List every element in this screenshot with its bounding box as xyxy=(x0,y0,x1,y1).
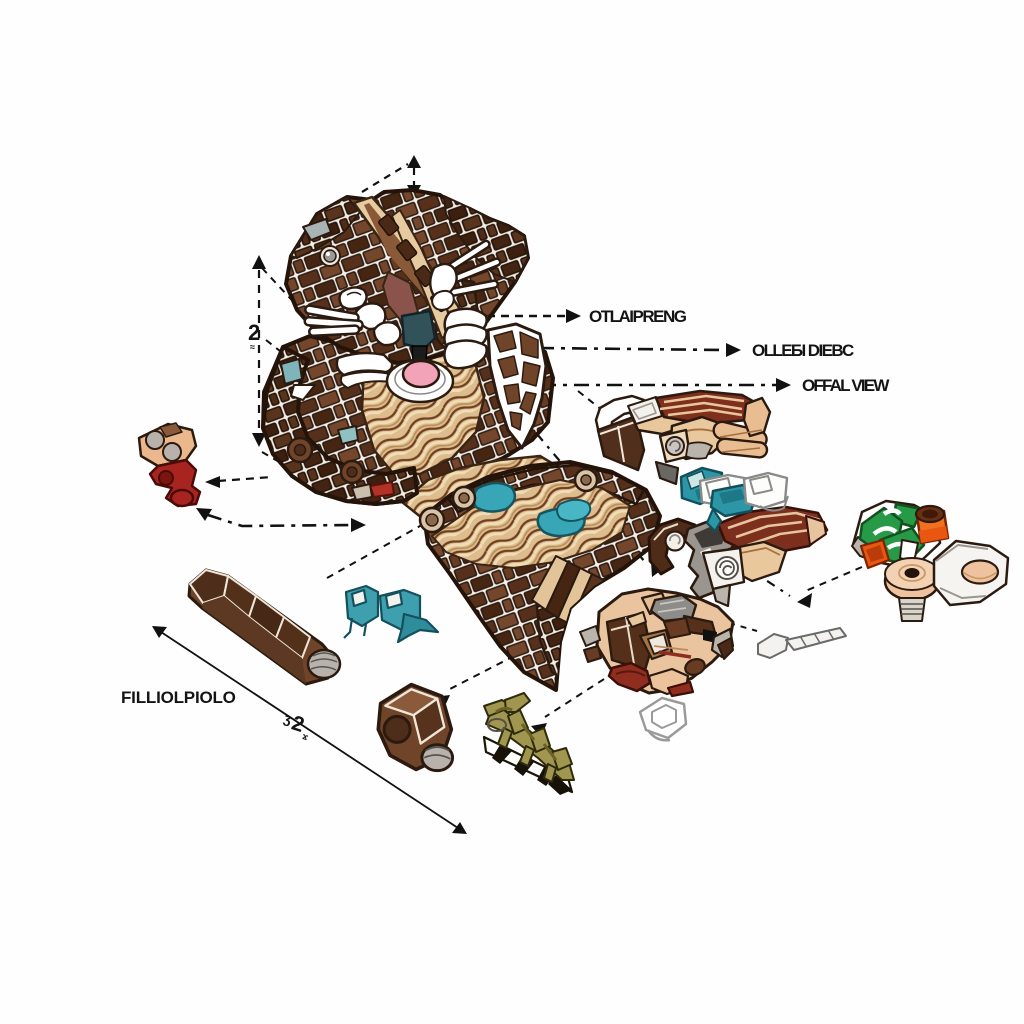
svg-text:OTLAIPRENG: OTLAIPRENG xyxy=(589,307,687,326)
svg-text:OFFAL VIEW: OFFAL VIEW xyxy=(802,376,890,395)
svg-text:OLLEБI DIEBC: OLLEБI DIEBC xyxy=(752,341,854,360)
svg-text:FILLIOLPIOLO: FILLIOLPIOLO xyxy=(121,688,236,707)
svg-text:≈: ≈ xyxy=(250,342,255,352)
